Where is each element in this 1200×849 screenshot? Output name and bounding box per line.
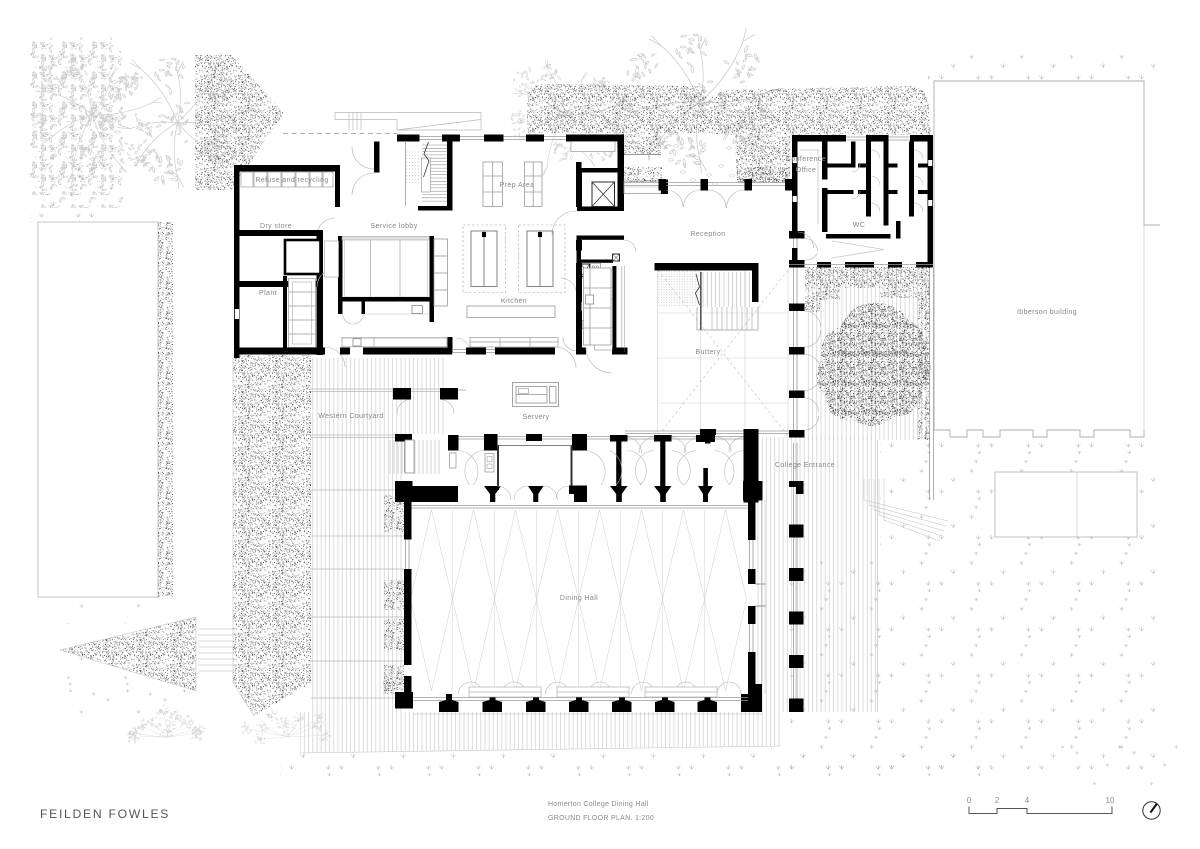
svg-text:Dry store: Dry store <box>260 223 292 230</box>
svg-text:Homerton College Dining Hall: Homerton College Dining Hall <box>548 801 649 808</box>
svg-text:FEILDEN FOWLES: FEILDEN FOWLES <box>40 807 170 821</box>
svg-text:Buttery: Buttery <box>696 349 721 356</box>
svg-text:Ibberson Courtyard: Ibberson Courtyard <box>838 350 905 357</box>
svg-text:Reception: Reception <box>690 231 725 238</box>
svg-text:Plant: Plant <box>259 290 277 297</box>
svg-text:4: 4 <box>1025 796 1030 805</box>
svg-text:Kitchen: Kitchen <box>501 298 527 305</box>
svg-text:College Entrance: College Entrance <box>775 462 835 469</box>
svg-text:Dining Hall: Dining Hall <box>560 595 598 602</box>
svg-text:WC: WC <box>853 222 865 229</box>
svg-text:GROUND FLOOR PLAN. 1:200: GROUND FLOOR PLAN. 1:200 <box>548 815 654 822</box>
svg-text:Refuse and recycling: Refuse and recycling <box>255 177 328 184</box>
svg-text:Servery: Servery <box>523 414 550 421</box>
svg-text:Western Courtyard: Western Courtyard <box>318 413 383 420</box>
svg-text:2: 2 <box>995 796 1000 805</box>
svg-text:0: 0 <box>967 796 972 805</box>
svg-text:10: 10 <box>1106 796 1115 805</box>
svg-text:Ibberson building: Ibberson building <box>1017 309 1077 316</box>
svg-text:Service lobby: Service lobby <box>370 223 417 230</box>
svg-text:Office: Office <box>796 167 817 174</box>
svg-text:Conference: Conference <box>786 156 826 163</box>
svg-text:Prep Area: Prep Area <box>500 182 535 189</box>
